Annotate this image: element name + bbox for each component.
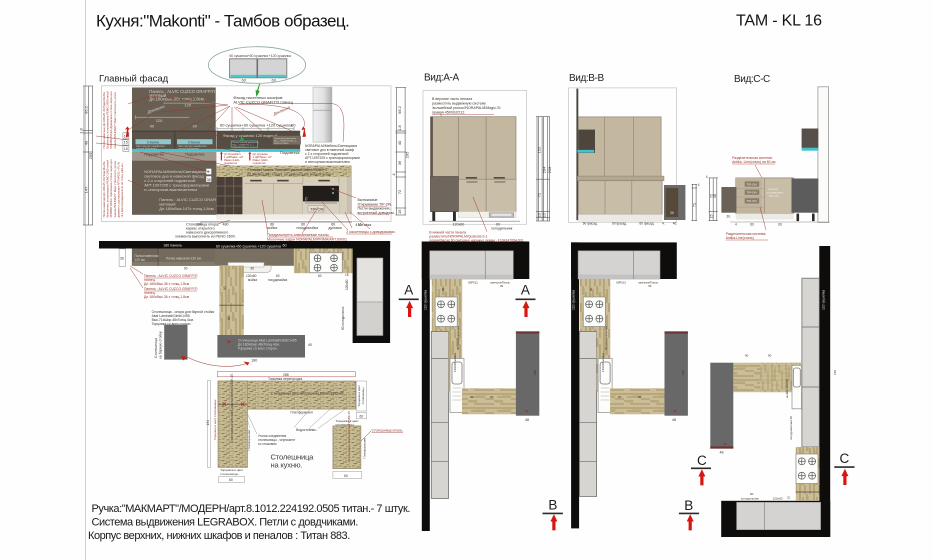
svg-text:219: 219	[547, 166, 552, 173]
svg-text:правая 4500G2O12.: правая 4500G2O12.	[432, 111, 465, 115]
svg-text:Столешница опора..: Столешница опора..	[372, 428, 404, 432]
svg-text:Главный фасад: Главный фасад	[99, 74, 169, 85]
svg-text:4: 4	[698, 183, 700, 187]
svg-text:подсветок: подсветок	[224, 161, 238, 165]
svg-text:15: 15	[787, 496, 791, 500]
svg-text:120 сушилка: 120 сушилка	[424, 290, 428, 310]
svg-text:48: 48	[525, 418, 529, 422]
svg-text:TIP-ON: TIP-ON	[747, 182, 757, 186]
svg-text:элемента выполнить из PENO 260: элемента выполнить из PENO 2600.	[175, 234, 236, 238]
svg-text:Корпус верхних, нижних шкафов: Корпус верхних, нижних шкафов и пеналов …	[88, 530, 350, 542]
svg-text:15: 15	[345, 273, 349, 277]
svg-text:48: 48	[720, 451, 724, 455]
svg-text:120 сушилка: 120 сушилка	[822, 290, 826, 310]
svg-text:1.8: 1.8	[397, 124, 402, 130]
svg-text:90: 90	[745, 354, 749, 358]
svg-text:60 фасад.: 60 фасад.	[583, 222, 598, 226]
svg-text:72: 72	[537, 192, 542, 197]
svg-text:120х60 мойка: 120х60 мойка	[601, 353, 605, 372]
svg-text:36: 36	[120, 257, 124, 261]
svg-text:180 панель: 180 панель	[163, 244, 182, 248]
svg-text:134: 134	[206, 420, 210, 426]
svg-text:на кухню.: на кухню.	[271, 461, 303, 470]
svg-text:духовка: духовка	[328, 226, 341, 230]
svg-text:Стекло: Стекло	[147, 140, 159, 144]
svg-text:TIP-ON: TIP-ON	[747, 191, 757, 195]
svg-text:180: 180	[833, 370, 837, 375]
svg-text:15: 15	[124, 147, 128, 151]
svg-text:холодильник: холодильник	[741, 497, 760, 501]
svg-text:C: C	[840, 451, 850, 466]
svg-text:60: 60	[638, 395, 642, 399]
svg-text:40: 40	[84, 140, 89, 145]
svg-text:1.8: 1.8	[79, 127, 84, 133]
svg-text:и сенсорным выключателем: и сенсорным выключателем	[144, 187, 197, 192]
svg-text:B: B	[684, 498, 693, 513]
svg-text:Дл.180хВыс.36 х толщ.1.8см: Дл.180хВыс.36 х толщ.1.8см	[144, 295, 190, 299]
svg-text:60Р021: 60Р021	[468, 280, 478, 284]
svg-text:120: 120	[156, 118, 163, 123]
svg-text:A: A	[404, 283, 413, 298]
svg-text:B: B	[548, 498, 557, 513]
svg-text:60: 60	[490, 395, 494, 399]
svg-text:панель ВИНОВАУ" Макс.статично: панель ВИНОВАУ" Макс.статичность узлов	[113, 92, 117, 149]
svg-text:A: A	[521, 283, 530, 298]
svg-text:90: 90	[184, 266, 188, 270]
svg-text:столешницы: столешницы	[361, 388, 365, 405]
svg-text:подсветок: подсветок	[253, 161, 267, 165]
svg-text:мойка 120х60: мойка 120х60	[785, 379, 789, 398]
svg-text:мойка: мойка	[267, 226, 277, 230]
svg-text:Дл.180хВыс.36 х толщ.1.8см: Дл.180хВыс.36 х толщ.1.8см	[144, 282, 190, 286]
svg-text:разместить выдвижную систему: разместить выдвижную систему	[432, 102, 486, 106]
svg-text:Antika- Line(сталь) на 60 см: Antika- Line(сталь) на 60 см	[732, 160, 776, 164]
svg-text:15: 15	[124, 141, 128, 145]
svg-text:посудомоечна 60: посудомоечна 60	[789, 416, 793, 440]
svg-text:48: 48	[672, 418, 676, 422]
svg-text:60: 60	[291, 123, 296, 128]
svg-text:Подсветка: Подсветка	[185, 151, 205, 156]
svg-text:90: 90	[441, 287, 445, 291]
svg-text:40: 40	[308, 343, 312, 347]
svg-text:40: 40	[397, 140, 402, 145]
svg-text:96.2: 96.2	[84, 105, 89, 114]
svg-text:посудомойка: посудомойка	[268, 278, 287, 282]
svg-text:120х60: 120х60	[345, 279, 349, 290]
svg-text:В верхние часть пенала: В верхние часть пенала	[432, 97, 472, 101]
svg-text:4.: 4.	[662, 222, 665, 226]
svg-text:60 посудомоечна: 60 посудомоечна	[604, 326, 608, 350]
svg-text:столешницы .: столешницы .	[220, 472, 240, 476]
svg-text:Предусмотреть алюминиевые пазл: Предусмотреть алюминиевые пазлы.	[267, 233, 329, 237]
svg-text:60: 60	[242, 78, 247, 83]
svg-text:Платформаинт: Платформаинт	[291, 410, 314, 414]
svg-text:4: 4	[706, 175, 708, 179]
svg-text:60.: 60.	[778, 222, 783, 226]
svg-text:71: 71	[693, 203, 697, 207]
svg-text:120х60 мойка: 120х60 мойка	[453, 353, 457, 372]
svg-text:36: 36	[713, 194, 717, 198]
svg-text:09: 09	[500, 284, 504, 288]
svg-text:147: 147	[84, 186, 89, 193]
svg-text:и сенсорным выключателем: и сенсорным выключателем	[305, 160, 350, 164]
svg-text:Дл.180хВыс.147х толщ.1.8см.: Дл.180хВыс.147х толщ.1.8см.	[159, 206, 214, 211]
svg-text:180: 180	[681, 370, 685, 375]
svg-text:Подсветка: Подсветка	[144, 151, 164, 156]
svg-text:60: 60	[618, 395, 622, 399]
svg-text:15: 15	[397, 209, 402, 214]
svg-text:Полка навесная 120 см.: Полка навесная 120 см.	[166, 257, 202, 261]
svg-text:480: 480	[223, 223, 229, 227]
svg-text:Стекло: Стекло	[188, 140, 200, 144]
svg-text:60: 60	[360, 414, 364, 418]
svg-text:120 см.: 120 см.	[135, 258, 146, 262]
svg-text:Ручка:"МАКМАРТ"/МОДЕРН/арт.8.1: Ручка:"МАКМАРТ"/МОДЕРН/арт.8.1012.224192…	[92, 503, 411, 515]
svg-text:Дл.3мхВыс.36х толщ.1 см (отрез: Дл.3мхВыс.36х толщ.1 см (отрезать Со впл…	[247, 172, 330, 176]
svg-text:на барную стойку: на барную стойку	[159, 331, 163, 359]
svg-text:Вид:В-В: Вид:В-В	[569, 73, 604, 84]
svg-text:Кухня:"Makonti" - Тамбов образ: Кухня:"Makonti" - Тамбов образец.	[96, 12, 349, 31]
svg-text:30.: 30.	[727, 215, 732, 219]
svg-text:60 сушилка+60 сушилка +120 суш: 60 сушилка+60 сушилка +120 сушилка	[216, 245, 281, 249]
svg-text:60: 60	[283, 244, 287, 248]
svg-text:60.: 60.	[750, 222, 755, 226]
svg-text:столешницы:: столешницы:	[336, 423, 355, 427]
svg-text:152: 152	[537, 146, 542, 153]
svg-text:холодильник: холодильник	[491, 227, 513, 231]
svg-text:15: 15	[542, 212, 547, 217]
svg-text:60: 60	[272, 78, 277, 83]
svg-text:Водостойник..: Водостойник..	[296, 428, 318, 432]
svg-text:TAM - KL 16: TAM - KL 16	[736, 13, 822, 30]
svg-text:4: 4	[735, 222, 737, 226]
svg-text:TIP-ON: TIP-ON	[747, 199, 757, 203]
svg-text:98.2: 98.2	[397, 105, 402, 114]
svg-text:60 фасад.: 60 фасад.	[612, 222, 627, 226]
svg-text:Система выдвижения LEGRABOX. П: Система выдвижения LEGRABOX. Петли с дов…	[92, 517, 359, 529]
svg-text:90: 90	[251, 266, 255, 270]
svg-text:204: 204	[542, 166, 547, 173]
svg-text:15: 15	[709, 215, 713, 219]
svg-text:180: 180	[533, 370, 537, 375]
svg-text:90: 90	[223, 286, 227, 290]
svg-text:120: 120	[184, 103, 191, 108]
svg-text:09: 09	[648, 284, 652, 288]
svg-text:Столешница Werzalit/Сушилка B: Столешница Werzalit/Сушилка British/1895…	[271, 391, 345, 395]
svg-text:60: 60	[227, 316, 231, 320]
svg-text:Торцевка перегородка: Торцевка перегородка	[268, 377, 302, 381]
svg-text:60: 60	[229, 478, 233, 482]
svg-text:встроенный доводчик.: встроенный доводчик.	[358, 211, 395, 215]
svg-text:60 посудомоечна: 60 посудомоечна	[456, 326, 460, 350]
svg-text:Столешница: Столешница	[154, 338, 158, 358]
svg-text:60: 60	[318, 274, 322, 278]
svg-text:60 холодильник: 60 холодильник	[341, 306, 345, 330]
svg-text:90: 90	[193, 123, 198, 128]
svg-text:60 сушилка+60 сушилка +120 суш: 60 сушилка+60 сушилка +120 сушилка	[220, 123, 293, 128]
svg-text:60 фасад.: 60 фасад.	[639, 222, 654, 226]
svg-text:38: 38	[207, 178, 211, 182]
svg-text:Платформаинт: Платформаинт	[363, 437, 367, 459]
svg-text:Подсветка: Подсветка	[280, 150, 300, 155]
svg-text:60: 60	[344, 474, 348, 478]
svg-text:120х60: 120х60	[773, 497, 783, 501]
svg-text:подсветками: подсветками	[232, 147, 246, 149]
svg-text:90: 90	[589, 287, 593, 291]
svg-text:46.: 46.	[673, 222, 678, 226]
svg-text:4: 4	[391, 173, 396, 176]
svg-text:Торцовка со всех сторон.: Торцовка со всех сторон.	[238, 347, 278, 351]
svg-text:120х60: 120х60	[453, 222, 465, 226]
svg-text:180: 180	[251, 358, 257, 362]
svg-text:36: 36	[397, 160, 402, 165]
svg-text:36: 36	[670, 211, 674, 215]
svg-text:90: 90	[150, 123, 155, 128]
svg-text:9: 9	[207, 170, 209, 174]
svg-text:60Р021: 60Р021	[616, 280, 626, 284]
svg-text:BORO-LORD5: BORO-LORD5	[274, 143, 289, 145]
svg-text:посудомойка: посудомойка	[297, 226, 319, 230]
svg-text:Столешница Werzalit/Сушилка B: Столешница Werzalit/Сушилка British/SSBK…	[230, 373, 234, 443]
svg-text:120 сушилка: 120 сушилка	[572, 290, 576, 310]
svg-text:60: 60	[750, 492, 754, 496]
svg-text:Antika-Line(сталь): Antika-Line(сталь)	[726, 236, 754, 240]
svg-text:295: 295	[405, 151, 410, 158]
svg-text:со стыковом: со стыковом	[258, 442, 276, 446]
svg-text:Платформаинт: Платформаинт	[247, 429, 251, 451]
svg-text:295: 295	[88, 152, 93, 159]
svg-text:Вид:А-А: Вид:А-А	[424, 73, 459, 84]
svg-text:Торцевка в цвет столешницы: Торцевка в цвет столешницы	[213, 400, 217, 441]
svg-text:Доковина: Доковина	[271, 104, 291, 117]
svg-text:мойка: мойка	[248, 278, 257, 282]
svg-text:'волшебный уголок'/NORAPALM/Ma: 'волшебный уголок'/NORAPALM/Magic-SI	[432, 106, 500, 110]
svg-text:72: 72	[397, 189, 402, 194]
svg-text:60 сушилка+60 сушилка +120 суш: 60 сушилка+60 сушилка +120 сушилка	[229, 54, 291, 58]
svg-text:4 вставка: 4 вставка	[355, 223, 371, 227]
svg-text:C: C	[697, 453, 707, 468]
svg-text:60: 60	[470, 395, 474, 399]
svg-text:TIP-ON: TIP-ON	[769, 194, 779, 198]
svg-text:Ч-1 декоспорадического ал толщ: Ч-1 декоспорадического ал толщ. дЕk-шч	[120, 163, 124, 218]
svg-text:90: 90	[768, 354, 772, 358]
svg-text:Фасад у сушилки 120 видный: Фасад у сушилки 120 видный	[223, 133, 278, 138]
svg-text:2 кассетницы с доводчиками.: 2 кассетницы с доводчиками.	[346, 230, 395, 234]
svg-text:Вид:С-С: Вид:С-С	[734, 74, 770, 85]
